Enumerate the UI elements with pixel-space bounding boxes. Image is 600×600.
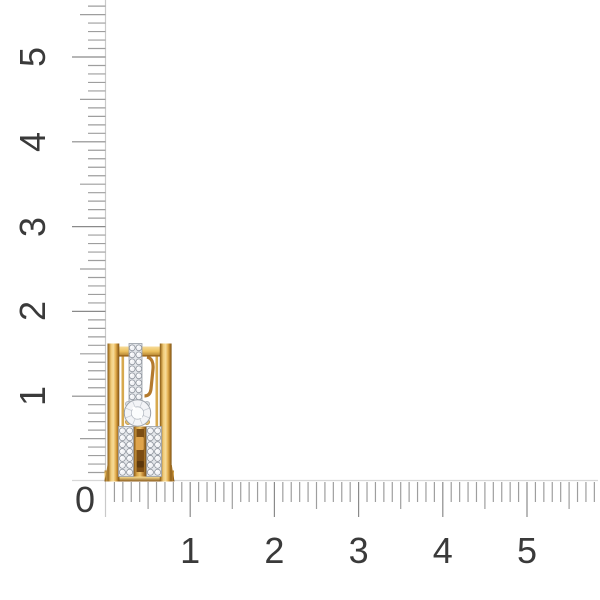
earring-center-diamond: [124, 400, 150, 426]
v-ruler-label-2: 2: [11, 289, 55, 333]
v-ruler-label-4: 4: [11, 120, 55, 164]
earring-lower-left-pave-row: [119, 427, 134, 477]
h-ruler-label-1: 1: [168, 529, 212, 573]
product-photo: 0 12345 12345: [0, 0, 600, 600]
horizontal-ruler: [114, 482, 594, 517]
earring-left-rail: [108, 344, 120, 482]
earring-top-pave-row: [129, 344, 142, 403]
h-ruler-label-5: 5: [505, 529, 549, 573]
earring-clip-hook: [145, 357, 154, 396]
earring: [105, 344, 175, 482]
h-ruler-label-4: 4: [421, 529, 465, 573]
v-ruler-label-1: 1: [11, 374, 55, 418]
vertical-ruler: [72, 6, 106, 472]
h-ruler-label-3: 3: [337, 529, 381, 573]
earring-lower-right-pave-row: [147, 427, 162, 477]
ruler-origin-label: 0: [63, 478, 107, 522]
v-ruler-label-3: 3: [11, 205, 55, 249]
earring-center-bar: [134, 427, 146, 477]
h-ruler-label-2: 2: [252, 529, 296, 573]
v-ruler-label-5: 5: [11, 35, 55, 79]
